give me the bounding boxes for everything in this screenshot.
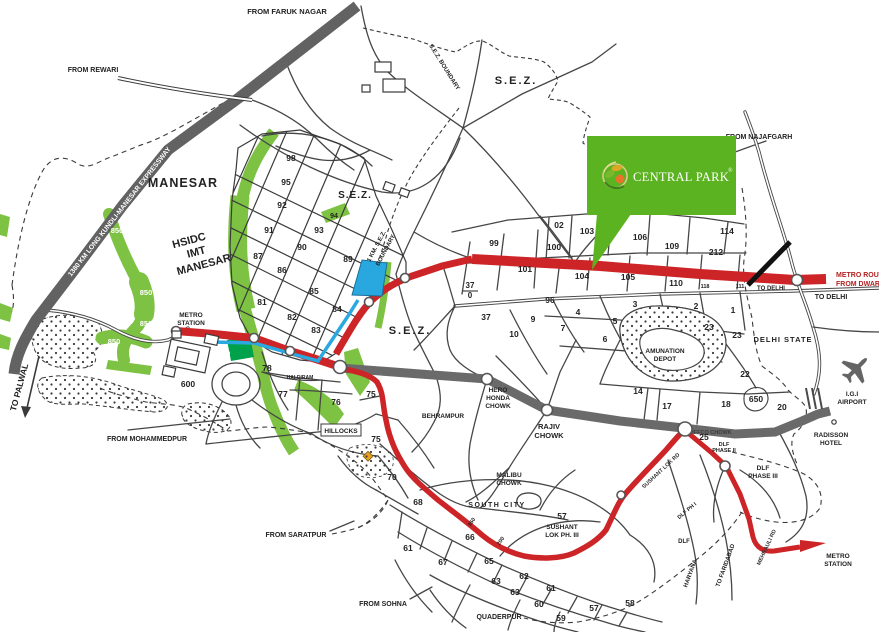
svg-text:600: 600	[181, 379, 195, 389]
svg-text:67: 67	[438, 557, 448, 567]
svg-text:61: 61	[403, 543, 413, 553]
svg-text:84: 84	[332, 304, 342, 314]
svg-text:STATION: STATION	[824, 561, 852, 568]
svg-text:76: 76	[331, 397, 341, 407]
svg-text:PHASE III: PHASE III	[748, 473, 778, 480]
svg-text:105: 105	[621, 272, 635, 282]
svg-text:94: 94	[330, 213, 338, 220]
svg-text:MANESAR: MANESAR	[148, 176, 218, 190]
svg-text:57: 57	[589, 603, 599, 613]
svg-text:850: 850	[108, 337, 121, 346]
svg-text:87: 87	[253, 251, 263, 261]
svg-text:92: 92	[277, 200, 287, 210]
svg-text:85: 85	[309, 286, 319, 296]
svg-text:S.E.Z.: S.E.Z.	[389, 325, 432, 337]
svg-text:86: 86	[277, 265, 287, 275]
svg-text:3: 3	[633, 299, 638, 309]
svg-text:STATION: STATION	[177, 320, 205, 327]
svg-text:106: 106	[633, 232, 647, 242]
svg-text:650: 650	[749, 394, 763, 404]
svg-text:10: 10	[509, 329, 519, 339]
svg-text:HILLOCKS: HILLOCKS	[324, 428, 358, 435]
svg-text:91: 91	[264, 225, 274, 235]
svg-text:63: 63	[510, 587, 520, 597]
svg-text:7: 7	[561, 323, 566, 333]
svg-text:5: 5	[613, 316, 618, 326]
svg-text:METRO: METRO	[179, 312, 202, 319]
svg-text:75: 75	[366, 389, 376, 399]
svg-text:DLF: DLF	[757, 465, 770, 472]
svg-text:77: 77	[278, 389, 288, 399]
svg-text:14: 14	[633, 386, 643, 396]
svg-text:IFFCO CHOWK: IFFCO CHOWK	[692, 430, 731, 436]
svg-text:FROM SOHNA: FROM SOHNA	[359, 601, 407, 608]
svg-text:TO DELHI: TO DELHI	[757, 286, 785, 292]
svg-text:S.E.Z.: S.E.Z.	[338, 190, 372, 201]
svg-text:DLF: DLF	[678, 539, 690, 545]
svg-text:83: 83	[311, 325, 321, 335]
svg-text:PHASE II: PHASE II	[712, 448, 736, 454]
svg-text:HONDA: HONDA	[486, 395, 510, 402]
svg-text:70: 70	[387, 472, 397, 482]
svg-text:212: 212	[709, 247, 723, 257]
svg-text:DEPOT: DEPOT	[654, 356, 676, 363]
svg-text:89: 89	[343, 254, 353, 264]
svg-text:81: 81	[257, 297, 267, 307]
svg-text:111: 111	[736, 284, 745, 290]
svg-text:I.G.I: I.G.I	[846, 391, 858, 398]
svg-text:FROM DWARKA: FROM DWARKA	[836, 281, 879, 288]
svg-text:66: 66	[465, 532, 475, 542]
svg-text:AMUNATION: AMUNATION	[645, 348, 685, 355]
svg-text:22: 22	[740, 369, 750, 379]
svg-text:18: 18	[721, 399, 731, 409]
svg-text:95: 95	[281, 177, 291, 187]
svg-text:CENTRAL PARK: CENTRAL PARK	[633, 170, 729, 184]
svg-text:RADISSON: RADISSON	[814, 432, 849, 439]
svg-text:82: 82	[287, 312, 297, 322]
svg-text:118: 118	[701, 284, 710, 290]
svg-text:LOK PH. III: LOK PH. III	[545, 532, 579, 539]
svg-text:HALDIRAM: HALDIRAM	[287, 375, 314, 381]
svg-text:20: 20	[777, 402, 787, 412]
svg-text:110: 110	[669, 278, 683, 288]
svg-text:104: 104	[575, 271, 589, 281]
svg-text:HERO: HERO	[489, 387, 508, 394]
svg-text:CHOWK: CHOWK	[485, 403, 511, 410]
svg-text:23: 23	[732, 330, 742, 340]
svg-text:60: 60	[534, 599, 544, 609]
svg-text:QUADERPUR: QUADERPUR	[476, 614, 521, 621]
svg-text:61: 61	[546, 583, 556, 593]
svg-text:2: 2	[694, 301, 699, 311]
svg-text:HOTEL: HOTEL	[820, 440, 842, 447]
svg-text:68: 68	[413, 497, 423, 507]
svg-text:850: 850	[140, 319, 153, 328]
svg-text:AIRPORT: AIRPORT	[837, 399, 866, 406]
svg-text:700: 700	[218, 349, 231, 358]
svg-text:6: 6	[603, 334, 608, 344]
svg-text:CHOWK: CHOWK	[534, 431, 564, 440]
svg-text:17: 17	[662, 401, 672, 411]
svg-text:58: 58	[625, 598, 635, 608]
svg-text:700: 700	[244, 418, 257, 427]
svg-text:METRO ROUTE: METRO ROUTE	[836, 272, 879, 279]
svg-text:0: 0	[468, 291, 473, 300]
svg-text:FROM REWARI: FROM REWARI	[68, 67, 119, 74]
svg-text:1: 1	[731, 305, 736, 315]
svg-text:57: 57	[557, 511, 567, 521]
svg-text:78: 78	[262, 363, 272, 373]
svg-text:BEHRAMPUR: BEHRAMPUR	[422, 413, 465, 420]
svg-text:63: 63	[491, 576, 501, 586]
svg-text:FROM SARATPUR: FROM SARATPUR	[266, 532, 327, 539]
svg-text:23: 23	[704, 322, 714, 332]
svg-text:75: 75	[371, 434, 381, 444]
svg-text:9: 9	[531, 314, 536, 324]
svg-text:CHOWK: CHOWK	[496, 480, 522, 487]
svg-text:FROM FARUK NAGAR: FROM FARUK NAGAR	[247, 7, 327, 16]
svg-text:65: 65	[484, 556, 494, 566]
svg-text:25: 25	[699, 432, 709, 442]
svg-text:101: 101	[518, 264, 532, 274]
svg-text:90: 90	[297, 242, 307, 252]
svg-text:59: 59	[556, 613, 566, 623]
svg-text:FROM MOHAMMEDPUR: FROM MOHAMMEDPUR	[107, 436, 187, 443]
svg-text:DELHI STATE: DELHI STATE	[753, 335, 812, 344]
svg-text:SUSHANT: SUSHANT	[546, 524, 577, 531]
svg-text:114: 114	[720, 226, 734, 236]
svg-text:103: 103	[580, 226, 594, 236]
svg-text:98: 98	[286, 153, 296, 163]
svg-text:RAJIV: RAJIV	[538, 422, 560, 431]
svg-text:850: 850	[140, 288, 153, 297]
svg-text:109: 109	[665, 241, 679, 251]
svg-text:62: 62	[519, 571, 529, 581]
svg-text:METRO: METRO	[826, 553, 849, 560]
svg-text:02: 02	[554, 220, 564, 230]
svg-text:99: 99	[489, 238, 499, 248]
svg-text:MALIBU: MALIBU	[496, 472, 522, 479]
svg-text:93: 93	[314, 225, 324, 235]
svg-text:100: 100	[547, 242, 561, 252]
svg-text:S.E.Z.: S.E.Z.	[495, 75, 538, 87]
svg-text:TO DELHI: TO DELHI	[815, 294, 848, 301]
svg-text:96: 96	[545, 295, 555, 305]
svg-text:SOUTH CITY: SOUTH CITY	[468, 502, 525, 509]
svg-text:37: 37	[466, 281, 475, 290]
svg-text:®: ®	[728, 167, 733, 174]
svg-text:37: 37	[481, 312, 491, 322]
svg-text:850: 850	[111, 226, 124, 235]
svg-text:4: 4	[576, 307, 581, 317]
